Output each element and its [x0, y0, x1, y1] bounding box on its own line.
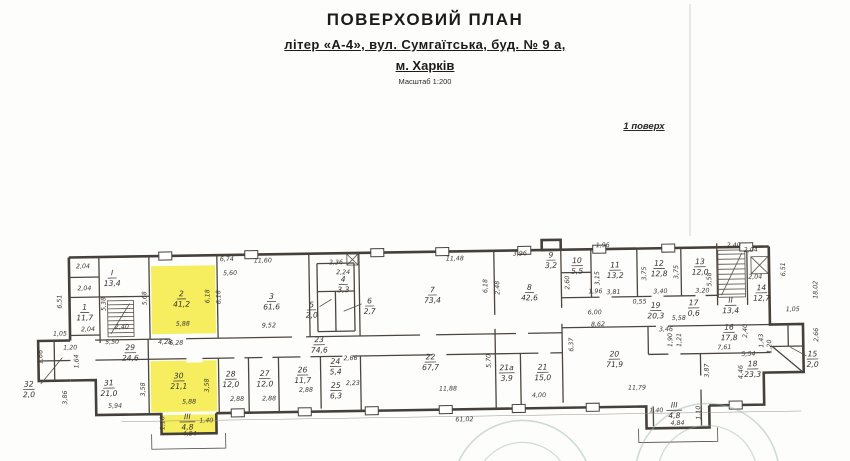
room-label-19: 1920,3 [647, 301, 664, 321]
room-label-14: 1412,7 [753, 283, 770, 303]
dim-label: 2,60 [564, 276, 571, 290]
room-label-8: 842,6 [521, 283, 538, 303]
svg-text:17,8: 17,8 [721, 333, 738, 342]
svg-text:6,3: 6,3 [330, 391, 342, 400]
dim-label: 4,28 [158, 339, 172, 346]
dim-label: 9,52 [262, 322, 276, 329]
svg-text:11,7: 11,7 [294, 376, 311, 385]
svg-text:15: 15 [808, 349, 818, 358]
stairs-right [718, 250, 746, 297]
svg-text:3,3: 3,3 [337, 285, 349, 294]
dim-label: 2,04 [76, 263, 90, 270]
room-label-20: 2071,9 [606, 349, 623, 369]
svg-text:71,9: 71,9 [606, 360, 623, 369]
dim-label: 2,48 [494, 281, 501, 295]
room-label-7: 773,4 [424, 285, 441, 305]
scanned-floor-plan-page: ПОВЕРХОВИЙ ПЛАН літер «А-4», вул. Сумгаї… [0, 0, 850, 461]
dim-label: 6,51 [780, 262, 787, 276]
svg-text:1: 1 [82, 303, 87, 312]
dim-label: 3,46 [659, 326, 673, 333]
svg-text:11: 11 [610, 260, 620, 269]
room-label-12: 1212,8 [650, 259, 667, 279]
dim-label: 5,50 [105, 339, 119, 346]
dim-label: 4,00 [532, 392, 546, 399]
dim-label: 3,58 [140, 382, 147, 396]
svg-text:28: 28 [226, 369, 236, 378]
stairs-left [108, 300, 135, 336]
svg-text:III: III [184, 412, 192, 421]
dim-label: 2,88 [299, 387, 313, 394]
room-label-25: 256,3 [330, 381, 343, 401]
svg-text:21,0: 21,0 [100, 389, 117, 398]
svg-text:7: 7 [430, 285, 435, 294]
dim-label: 3,96 [513, 250, 527, 257]
dim-label: 2,04 [77, 285, 91, 292]
room-label-32: 322,0 [23, 380, 36, 400]
dim-label: 6,00 [588, 309, 602, 316]
svg-text:I: I [111, 268, 114, 277]
svg-text:61,6: 61,6 [263, 302, 280, 311]
room-label-I: I13,4 [104, 268, 121, 288]
room-label-4: 43,3 [337, 275, 350, 295]
svg-text:0,6: 0,6 [688, 309, 700, 318]
svg-text:23: 23 [314, 335, 324, 344]
svg-text:12,7: 12,7 [753, 293, 770, 302]
dim-label: 5,54 [741, 351, 755, 358]
room-label-5: 52,0 [305, 300, 318, 320]
dim-label: 3,58 [204, 378, 211, 392]
dim-label: 11,88 [439, 385, 457, 392]
dim-label: 2,04 [81, 326, 95, 333]
dim-label: 1,05 [786, 306, 800, 313]
svg-text:17: 17 [689, 298, 699, 307]
room-label-1: 111,7 [76, 303, 93, 323]
room-label-11: 1113,2 [606, 260, 623, 280]
dim-label: 2,66 [813, 328, 820, 342]
room-label-31: 3121,0 [100, 378, 117, 398]
dim-label: 1,10 [695, 406, 702, 420]
dim-label: 2,23 [346, 380, 360, 387]
dim-label: 4,46 [738, 365, 745, 379]
svg-text:4,8: 4,8 [668, 411, 680, 420]
svg-text:29: 29 [125, 343, 135, 352]
room-label-6: 62,7 [363, 296, 376, 316]
dim-label: 5,60 [223, 270, 237, 277]
svg-text:13: 13 [695, 257, 705, 266]
room-label-17: 170,6 [687, 298, 700, 318]
svg-text:23,3: 23,3 [744, 370, 761, 379]
svg-text:3,9: 3,9 [501, 374, 513, 383]
dim-label: 1,10 [159, 416, 166, 430]
dim-label: 2,04 [748, 274, 762, 281]
dim-label: 3,87 [704, 363, 711, 377]
room-label-21а: 21а3,9 [499, 363, 515, 383]
svg-text:26: 26 [298, 365, 308, 374]
svg-text:2: 2 [179, 289, 184, 298]
dim-label: 4,84 [183, 431, 197, 438]
svg-text:24,6: 24,6 [122, 353, 139, 362]
dim-label: 6,74 [220, 256, 234, 263]
dim-label: 1,21 [676, 333, 683, 347]
dim-label: 11,60 [254, 257, 272, 264]
svg-text:6: 6 [367, 296, 372, 305]
dim-label: 2,88 [230, 396, 244, 403]
svg-text:32: 32 [24, 380, 34, 389]
dim-label: 3,40 [653, 288, 667, 295]
svg-text:5: 5 [309, 300, 314, 309]
svg-text:15,0: 15,0 [534, 373, 551, 382]
svg-text:31: 31 [104, 378, 114, 387]
svg-text:13,4: 13,4 [722, 306, 739, 315]
dim-label: 1,05 [53, 331, 67, 338]
svg-text:42,6: 42,6 [521, 293, 538, 302]
porches [152, 425, 718, 450]
dim-label: 1,20 [63, 344, 77, 351]
svg-text:18: 18 [748, 359, 758, 368]
dim-label: 2,36 [329, 259, 343, 266]
svg-text:74,6: 74,6 [311, 345, 328, 354]
svg-text:14: 14 [756, 283, 766, 292]
svg-text:67,7: 67,7 [422, 363, 439, 372]
room-label-29: 2924,6 [122, 343, 139, 363]
dim-label: 1,40 [199, 417, 213, 424]
svg-text:10: 10 [572, 256, 582, 265]
dim-label: 6,51 [56, 295, 63, 309]
room-label-III: III4,8 [666, 400, 682, 420]
dim-label: 1,66 [37, 350, 44, 364]
dim-label: 0,55 [633, 298, 647, 305]
dim-label: 3,81 [606, 289, 620, 296]
dim-label: 5,94 [108, 403, 122, 410]
svg-text:9: 9 [548, 250, 553, 259]
dim-label: 5,68 [141, 291, 148, 305]
dim-label: 1,20 [766, 339, 773, 353]
room-label-3: 361,6 [263, 292, 280, 312]
svg-text:20: 20 [609, 349, 619, 358]
svg-text:13,4: 13,4 [104, 279, 121, 288]
svg-text:2,0: 2,0 [23, 390, 35, 399]
svg-text:16: 16 [724, 323, 734, 332]
dim-label: 6,18 [482, 279, 489, 293]
svg-text:27: 27 [260, 369, 270, 378]
dim-label: 5,88 [176, 321, 190, 328]
floor-plan-drawing: I13,4111,7241,2361,643,352,062,7773,4842… [0, 0, 850, 461]
svg-text:25: 25 [331, 381, 341, 390]
dim-label: 5,70 [485, 354, 492, 368]
svg-text:24: 24 [331, 357, 341, 366]
dim-label: 1,96 [588, 288, 602, 295]
room-label-II: II13,4 [722, 295, 739, 315]
dim-label: 5,38 [100, 297, 107, 311]
dim-label: 3,20 [695, 287, 709, 294]
room-label-15: 152,0 [806, 349, 819, 369]
svg-text:21,1: 21,1 [170, 382, 187, 391]
dim-label: 1,96 [596, 242, 610, 249]
svg-text:12,8: 12,8 [651, 269, 668, 278]
dim-label: 2,40 [115, 324, 129, 331]
dim-label: 1,64 [73, 354, 80, 368]
round-stamp [451, 402, 780, 461]
dim-label: 7,61 [717, 344, 731, 351]
room-label-10: 105,5 [571, 256, 584, 276]
room-label-23: 2374,6 [311, 335, 328, 355]
dim-label: 3,15 [594, 271, 601, 285]
room-label-21: 2115,0 [534, 362, 551, 382]
svg-text:2,0: 2,0 [306, 311, 318, 320]
dim-label: 5,88 [182, 399, 196, 406]
svg-text:13,2: 13,2 [607, 271, 624, 280]
dim-label: 3,75 [673, 265, 680, 279]
svg-text:19: 19 [651, 301, 661, 310]
dim-label: 5,58 [706, 272, 713, 286]
svg-text:3,2: 3,2 [545, 261, 557, 270]
dim-label: 18,02 [812, 281, 819, 299]
dim-label: 3,75 [641, 266, 648, 280]
dim-label: 6,37 [568, 338, 575, 352]
dim-label: 61,02 [455, 416, 473, 423]
dim-label: 2,40 [727, 242, 741, 249]
dim-label: 1,40 [649, 407, 663, 414]
svg-text:20,3: 20,3 [647, 311, 664, 320]
dim-label: 2,40 [742, 324, 749, 338]
svg-text:8: 8 [527, 283, 532, 292]
room-label-18: 1823,3 [744, 359, 761, 379]
svg-text:30: 30 [174, 371, 184, 380]
dim-label: 3,86 [62, 391, 69, 405]
door-openings [169, 292, 706, 398]
dim-label: 2,04 [744, 247, 758, 254]
svg-text:73,4: 73,4 [424, 296, 441, 305]
dim-label: 2,66 [343, 355, 357, 362]
dim-label: 8,62 [591, 321, 605, 328]
svg-text:21а: 21а [499, 363, 514, 372]
svg-text:12,0: 12,0 [222, 380, 239, 389]
room-label-9: 93,2 [545, 250, 558, 270]
svg-text:3: 3 [269, 292, 274, 301]
svg-text:5,4: 5,4 [330, 367, 342, 376]
svg-text:12,0: 12,0 [256, 379, 273, 388]
dim-label: 1,90 [667, 333, 674, 347]
dim-label: 2,24 [336, 269, 350, 276]
dim-label: 4,84 [670, 420, 684, 427]
dim-label: 6,18 [204, 289, 211, 303]
dim-label: 11,48 [446, 255, 464, 262]
dim-label: 5,58 [672, 315, 686, 322]
svg-text:5,5: 5,5 [571, 266, 583, 275]
svg-text:2,7: 2,7 [364, 307, 376, 316]
svg-text:2,0: 2,0 [806, 360, 818, 369]
dim-label: 11,79 [628, 384, 646, 391]
svg-text:12: 12 [654, 259, 664, 268]
dim-label: 1,43 [758, 334, 765, 348]
room-label-27: 2712,0 [256, 369, 273, 389]
svg-text:III: III [671, 400, 679, 409]
room-label-24: 245,4 [329, 357, 342, 377]
svg-text:11,7: 11,7 [76, 313, 93, 322]
svg-text:41,2: 41,2 [173, 300, 190, 309]
room-label-26: 2611,7 [294, 365, 311, 385]
dim-label: 2,88 [262, 395, 276, 402]
svg-text:21: 21 [538, 363, 548, 372]
svg-text:22: 22 [426, 352, 436, 361]
dim-label: 6,18 [215, 290, 222, 304]
room-label-28: 2812,0 [222, 369, 239, 389]
